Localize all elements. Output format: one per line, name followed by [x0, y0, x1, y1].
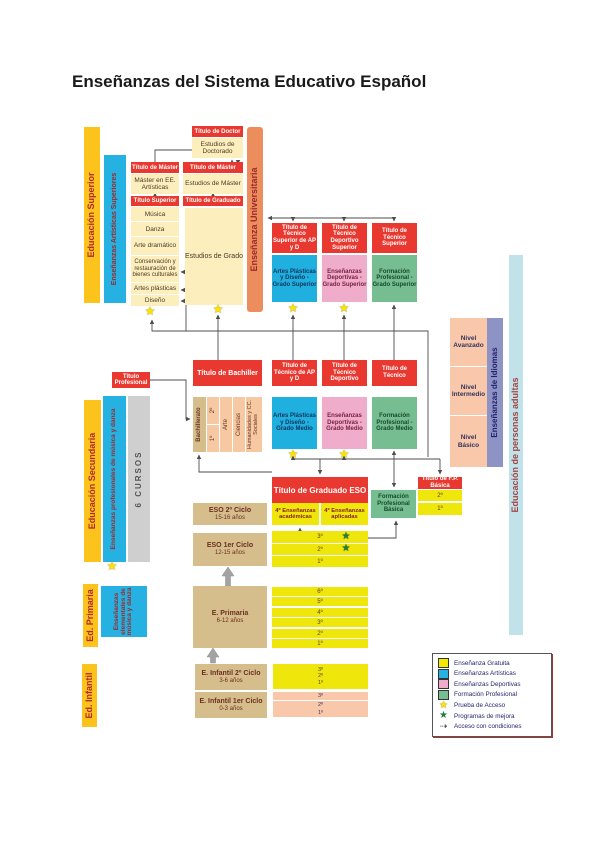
box-artes-plasticas: Artes plásticas: [131, 283, 179, 294]
box-artes-plasticas-grado-superior: Artes Plásticas y Diseño - Grado Superio…: [272, 255, 317, 302]
strip-ensenanzas-elementales: Enseñanzas elementales de música y danza: [101, 586, 147, 637]
cell-bachillerato-2: 2º: [207, 397, 219, 424]
primaria-label: E. Primaria: [212, 610, 249, 618]
row-infantil1-1: 1º: [273, 709, 368, 717]
legend: Enseñanza Gratuita Enseñanzas Artísticas…: [432, 653, 552, 737]
box-titulo-master: Título de Máster: [183, 162, 243, 173]
box-titulo-tecnico-deportivo: Título de Técnico Deportivo: [322, 360, 367, 386]
box-nivel-intermedio: Nivel Intermedio: [450, 367, 487, 416]
box-eso-ciclo1: ESO 1er Ciclo 12-15 años: [193, 533, 267, 566]
box-arte-dramatico: Arte dramático: [131, 237, 179, 255]
dashed-arrow-icon: ⇢: [438, 721, 449, 732]
box-musica: Música: [131, 207, 179, 221]
row-primaria-3: 3º: [272, 618, 368, 627]
cell-4-academicas: 4º Enseñanzas académicas: [272, 503, 319, 525]
box-titulo-graduado: Título de Graduado: [183, 196, 243, 206]
legend-item-deportivas: Enseñanzas Deportivas: [438, 679, 546, 689]
box-deportivas-grado-superior: Enseñanzas Deportivas - Grado Superior: [322, 255, 367, 302]
box-estudios-doctorado: Estudios de Doctorado: [192, 138, 243, 158]
prueba-acceso-star-icon: ★: [106, 560, 118, 572]
infantil-ciclo1-label: E. Infantil 1er Ciclo: [199, 698, 262, 706]
row-primaria-1: 1º: [272, 639, 368, 648]
row-eso-1: 1º: [272, 556, 368, 567]
box-titulo-bachiller: Título de Bachiller: [193, 360, 262, 386]
box-titulo-tecnico-superior: Título de Técnico Superior: [372, 223, 417, 253]
box-nivel-basico: Nivel Básico: [450, 416, 487, 467]
row-infantil1-3: 3º: [273, 692, 368, 700]
cell-bachillerato-1: 1º: [207, 425, 219, 452]
strip-educacion-personas-adultas: Educación de personas adultas: [509, 255, 523, 635]
row-eso-2: 2º: [272, 544, 368, 555]
row-eso-3: 3º: [272, 531, 368, 543]
legend-item-programas-mejora: ★ Programas de mejora: [438, 711, 546, 721]
box-titulo-doctor: Título de Doctor: [192, 126, 243, 137]
box-titulo-tecnico: Título de Técnico: [372, 360, 417, 386]
cell-4-aplicadas: 4º Enseñanzas aplicadas: [321, 503, 368, 525]
box-infantil-ciclo1: E. Infantil 1er Ciclo 0-3 años: [195, 692, 267, 718]
column-modalidad-arte: Arte: [220, 397, 232, 452]
legend-label: Enseñanzas Artísticas: [454, 670, 516, 677]
prueba-acceso-star-icon: ★: [338, 302, 350, 314]
green-swatch-icon: [438, 690, 449, 700]
box-nivel-avanzado: Nivel Avanzado: [450, 318, 487, 367]
box-titulo-superior: Título Superior: [131, 196, 179, 206]
strip-ensenanzas-artisticas-superiores: Enseñanzas Artísticas Superiores: [104, 155, 126, 303]
box-estudios-master: Estudios de Máster: [183, 174, 243, 194]
programa-mejora-star-icon: ★: [340, 544, 352, 554]
row-primaria-5: 5º: [272, 597, 368, 606]
legend-item-fp: Formación Profesional: [438, 690, 546, 700]
strip-ensenanza-universitaria: Enseñanza Universitaria: [247, 127, 263, 312]
programa-mejora-star-icon: ★: [340, 532, 352, 542]
strip-ed-infantil: Ed. Infantil: [82, 664, 97, 727]
legend-label: Formación Profesional: [454, 691, 517, 698]
row-primaria-4: 4º: [272, 608, 368, 617]
eso-ciclo2-label: ESO 2º Ciclo: [209, 507, 251, 515]
strip-seis-cursos: 6 CURSOS: [128, 396, 150, 562]
box-estudios-grado: Estudios de Grado: [185, 208, 243, 305]
box-titulo-graduado-eso: Título de Graduado ESO: [272, 477, 368, 503]
legend-label: Acceso con condiciones: [454, 723, 522, 730]
eso-ciclo1-edad: 12-15 años: [215, 550, 245, 557]
strip-ensenanzas-profesionales-musica: Enseñanzas profesionales de música y dan…: [103, 396, 126, 562]
strip-educacion-superior: Educación Superior: [84, 127, 100, 303]
column-bachillerato-label: Bachillerato: [193, 397, 206, 452]
yellow-swatch-icon: [438, 658, 449, 668]
box-titulo-tecnico-deportivo-superior: Título de Técnico Deportivo Superior: [322, 223, 367, 253]
box-danza: Danza: [131, 222, 179, 236]
box-fp-grado-medio: Formación Profesional - Grado Medio: [372, 397, 417, 449]
box-master-ensenanzas-artisticas: Máster en EE. Artísticas: [131, 174, 179, 194]
row-infantil1-2: 2º: [273, 701, 368, 709]
row-infantil2-1: 1º: [318, 680, 323, 686]
legend-item-acceso-condiciones: ⇢ Acceso con condiciones: [438, 722, 546, 732]
block-infantil-ciclo2-cursos: 3º 2º 1º: [273, 664, 368, 689]
legend-item-gratuita: Enseñanza Gratuita: [438, 658, 546, 668]
prueba-acceso-star-icon: ★: [338, 448, 350, 460]
legend-label: Programas de mejora: [454, 713, 515, 720]
eso-ciclo1-label: ESO 1er Ciclo: [207, 542, 253, 550]
box-titulo-master-artisticas: Título de Máster: [131, 162, 179, 173]
prueba-acceso-star-icon: ★: [212, 303, 224, 315]
pink-swatch-icon: [438, 679, 449, 689]
legend-label: Enseñanza Gratuita: [454, 660, 510, 667]
diagram-canvas: Enseñanzas del Sistema Educativo Español: [0, 0, 600, 848]
prueba-acceso-star-icon: ★: [287, 448, 299, 460]
cell-fp-basica-2: 2º: [418, 490, 462, 501]
box-titulo-profesional: Título Profesional: [112, 372, 150, 388]
box-titulo-tecnico-apd: Título de Técnico de AP y D: [272, 360, 317, 386]
prueba-acceso-star-icon: ★: [144, 305, 156, 317]
box-fp-grado-superior: Formación Profesional - Grado Superior: [372, 255, 417, 302]
eso-ciclo2-edad: 15-16 años: [215, 515, 245, 522]
strip-ed-primaria: Ed. Primaria: [83, 584, 98, 647]
box-infantil-ciclo2: E. Infantil 2º Ciclo 3-6 años: [195, 664, 267, 690]
infantil-ciclo2-label: E. Infantil 2º Ciclo: [202, 670, 261, 678]
strip-educacion-secundaria: Educación Secundaria: [84, 400, 101, 562]
legend-label: Prueba de Acceso: [454, 702, 505, 709]
strip-ensenanzas-idiomas: Enseñanzas de Idiomas: [487, 318, 503, 467]
box-fp-basica: Formación Profesional Básica: [371, 490, 416, 518]
programa-mejora-star-icon: ★: [438, 711, 449, 721]
box-primaria: E. Primaria 6-12 años: [193, 586, 267, 648]
box-deportivas-grado-medio: Enseñanzas Deportivas - Grado Medio: [322, 397, 367, 449]
legend-item-artisticas: Enseñanzas Artísticas: [438, 669, 546, 679]
prueba-acceso-star-icon: ★: [287, 302, 299, 314]
legend-item-prueba-acceso: ★ Prueba de Acceso: [438, 701, 546, 711]
box-titulo-tecnico-superior-apd: Título de Técnico Superior de AP y D: [272, 223, 317, 253]
box-artes-plasticas-grado-medio: Artes Plásticas y Diseño - Grado Medio: [272, 397, 317, 449]
row-primaria-2: 2º: [272, 629, 368, 638]
infantil-ciclo2-edad: 3-6 años: [219, 678, 242, 685]
blue-swatch-icon: [438, 669, 449, 679]
column-modalidad-ciencias: Ciencias: [233, 397, 245, 452]
cell-fp-basica-1: 1º: [418, 503, 462, 515]
box-titulo-fp-basica: Título de F.P. Básica: [418, 477, 462, 489]
infantil-ciclo1-edad: 0-3 años: [219, 706, 242, 713]
row-primaria-6: 6º: [272, 587, 368, 596]
box-conservacion-restauracion: Conservación y restauración de bienes cu…: [131, 256, 179, 282]
column-modalidad-humanidades: Humanidades y CC. Sociales: [246, 397, 262, 452]
primaria-edad: 6-12 años: [217, 618, 244, 625]
legend-label: Enseñanzas Deportivas: [454, 681, 521, 688]
box-eso-ciclo2: ESO 2º Ciclo 15-16 años: [193, 503, 267, 525]
prueba-acceso-star-icon: ★: [438, 701, 449, 711]
